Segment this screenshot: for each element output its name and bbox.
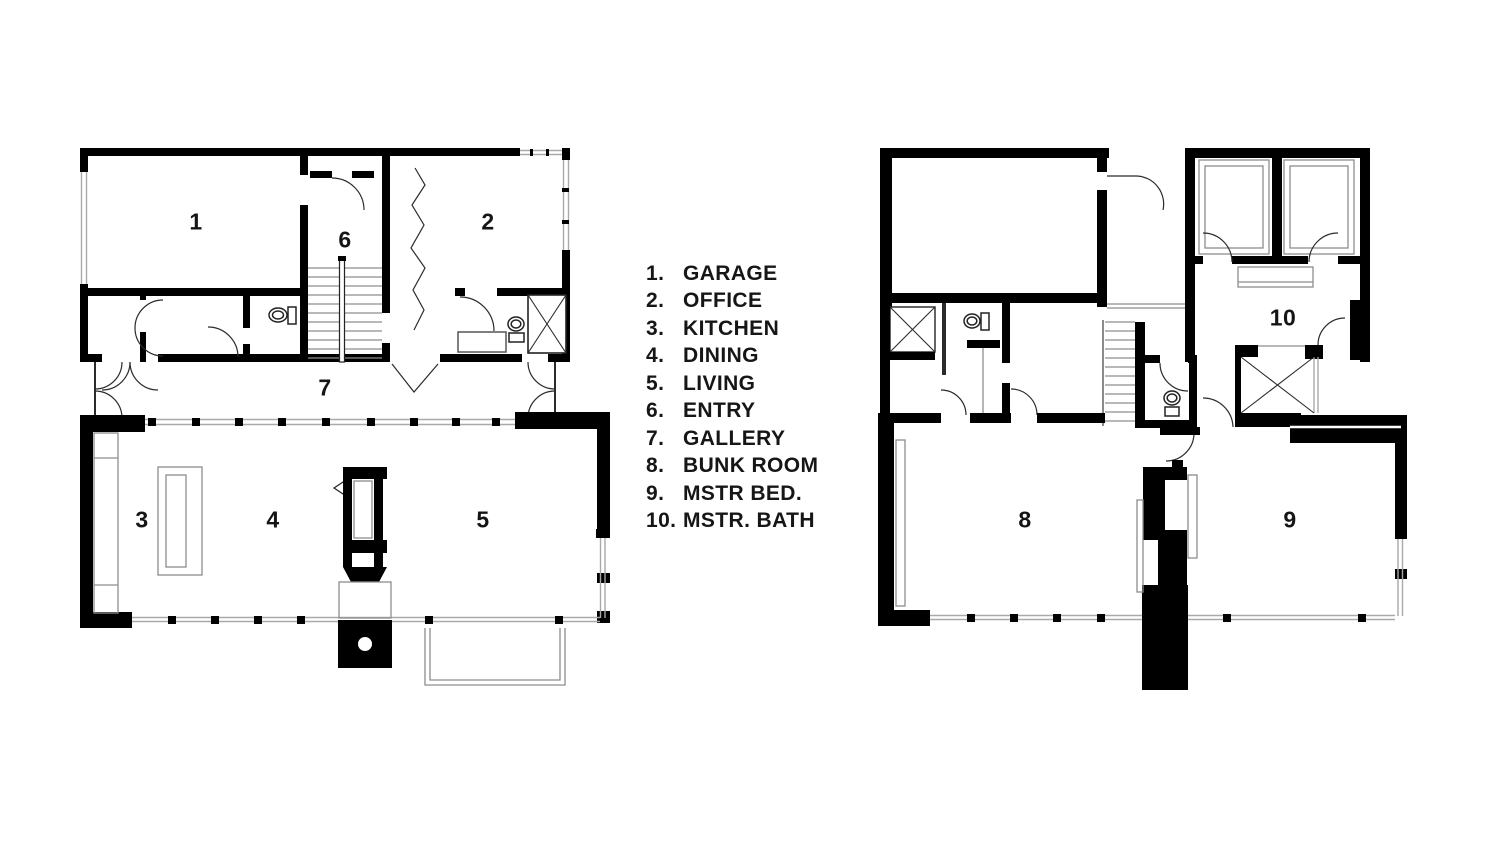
kitchen-island <box>158 467 202 575</box>
chimney-upper <box>1137 460 1197 690</box>
room-label-garage: 1 <box>189 211 202 234</box>
room-label-living: 5 <box>476 509 489 532</box>
legend-item: 9.MSTR BED. <box>646 480 818 508</box>
office-bath-fixtures <box>458 317 524 352</box>
lower-block-windows <box>132 418 605 624</box>
hall-wall <box>1160 427 1200 435</box>
room-label-bunk-room: 8 <box>1018 509 1031 532</box>
master-shower <box>1235 345 1323 427</box>
room-label-master-bed: 9 <box>1283 509 1296 532</box>
first-floor-plan: 1 6 2 7 3 4 5 <box>80 148 610 688</box>
powder-room-toilet-icon <box>269 307 296 324</box>
staircase <box>308 256 382 362</box>
room-legend: 1.GARAGE 2.OFFICE 3.KITCHEN 4.DINING 5.L… <box>646 260 818 535</box>
room-label-office: 2 <box>481 211 494 234</box>
legend-item: 10.MSTR. BATH <box>646 508 818 536</box>
legend-item: 1.GARAGE <box>646 260 818 288</box>
legend-item: 8.BUNK ROOM <box>646 453 818 481</box>
office-shower <box>528 295 566 353</box>
legend-item: 2.OFFICE <box>646 288 818 316</box>
second-floor-plan: 8 9 10 <box>878 146 1410 694</box>
upper-block-windows <box>82 149 570 284</box>
legend-item: 3.KITCHEN <box>646 315 818 343</box>
fireplace <box>334 467 391 618</box>
legend-item: 6.ENTRY <box>646 398 818 426</box>
room-label-entry: 6 <box>338 229 351 252</box>
roof-block-walls <box>880 148 1164 307</box>
deck <box>425 628 565 685</box>
kitchen-counter <box>94 433 118 613</box>
legend-item: 7.GALLERY <box>646 425 818 453</box>
room-label-kitchen: 3 <box>135 509 148 532</box>
room-label-dining: 4 <box>266 509 279 532</box>
second-floor-plan-drawing <box>878 146 1410 694</box>
room-label-gallery: 7 <box>318 377 331 400</box>
floor-plan-page: 1 6 2 7 3 4 5 1.GARAGE 2.OFFICE 3.KITCHE… <box>0 0 1490 862</box>
legend-item: 5.LIVING <box>646 370 818 398</box>
chimney <box>338 620 392 668</box>
accordion-door <box>411 168 425 330</box>
upper-hall-bath <box>880 303 1010 413</box>
legend-item: 4.DINING <box>646 343 818 371</box>
upper-block-walls <box>80 148 570 362</box>
room-label-master-bath: 10 <box>1270 307 1297 330</box>
